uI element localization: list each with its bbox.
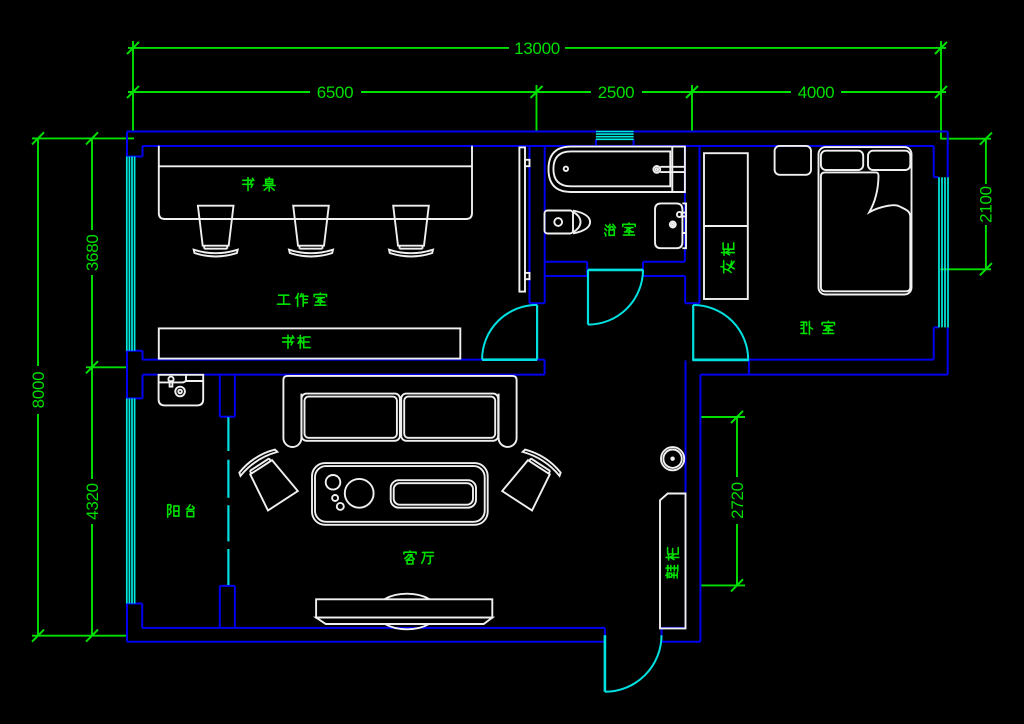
svg-text:2720: 2720 (728, 482, 747, 519)
svg-text:13000: 13000 (514, 39, 560, 58)
svg-text:2500: 2500 (598, 83, 635, 102)
svg-text:2100: 2100 (977, 186, 996, 223)
svg-text:6500: 6500 (317, 83, 354, 102)
svg-text:3680: 3680 (83, 234, 102, 271)
svg-text:4320: 4320 (83, 483, 102, 520)
svg-text:8000: 8000 (29, 372, 48, 409)
svg-text:4000: 4000 (798, 83, 835, 102)
